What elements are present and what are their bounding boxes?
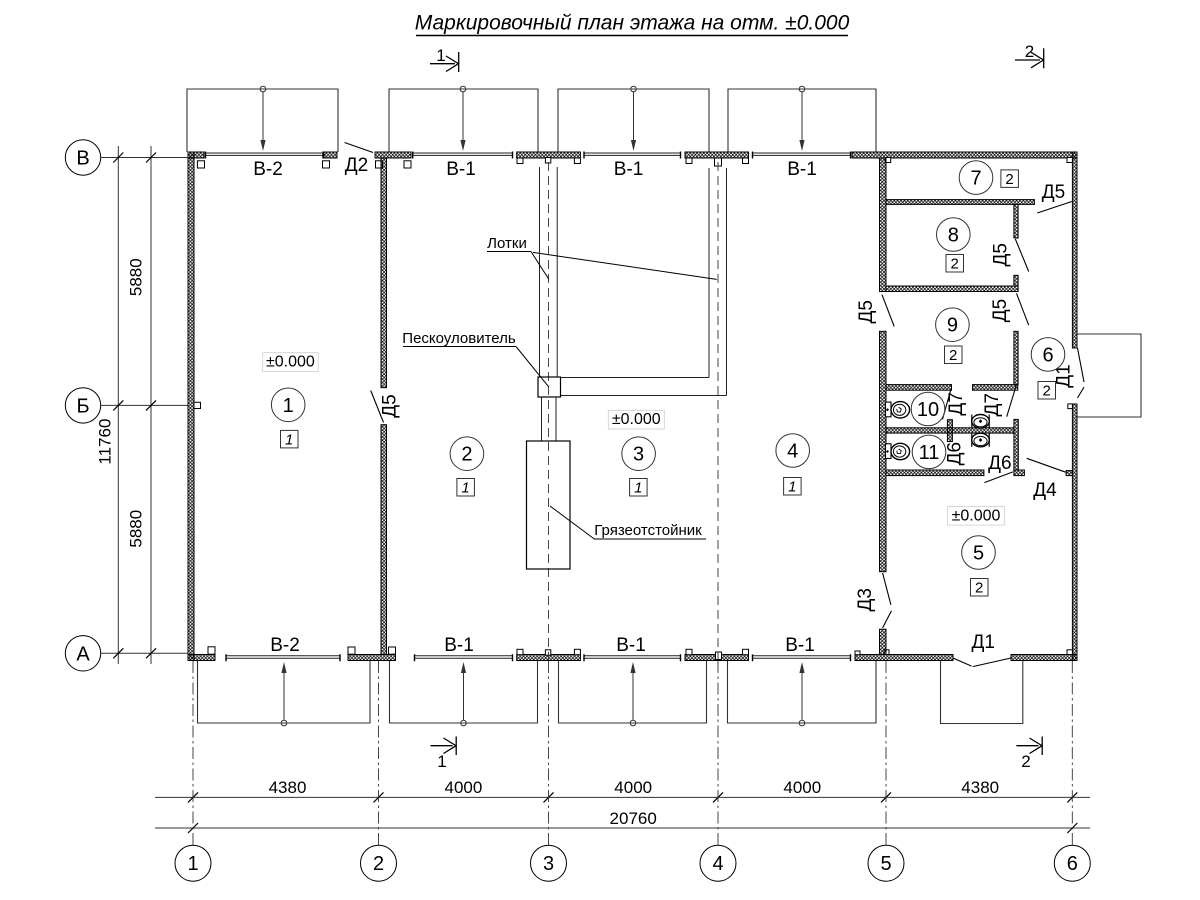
svg-text:2: 2 <box>1005 171 1013 188</box>
svg-text:Д1: Д1 <box>1054 364 1075 387</box>
svg-text:1: 1 <box>285 432 293 449</box>
svg-text:В-1: В-1 <box>787 159 817 180</box>
svg-text:Д6: Д6 <box>945 442 966 465</box>
svg-text:1: 1 <box>187 853 198 875</box>
svg-text:В-2: В-2 <box>270 635 300 656</box>
svg-text:Д5: Д5 <box>856 300 877 323</box>
svg-text:Грязеотстойник: Грязеотстойник <box>594 522 702 539</box>
svg-text:Маркировочный план этажа на от: Маркировочный план этажа на отм. ±0.000 <box>415 12 850 35</box>
svg-text:Д6: Д6 <box>988 453 1011 474</box>
svg-text:±0.000: ±0.000 <box>266 354 315 371</box>
svg-text:В-1: В-1 <box>616 635 646 656</box>
svg-text:4000: 4000 <box>614 778 652 797</box>
svg-text:1: 1 <box>461 480 469 497</box>
svg-text:5880: 5880 <box>127 510 146 548</box>
svg-text:11: 11 <box>919 442 940 464</box>
svg-text:Д5: Д5 <box>991 243 1012 266</box>
svg-text:4000: 4000 <box>444 778 482 797</box>
svg-text:3: 3 <box>633 444 644 466</box>
svg-text:5: 5 <box>880 853 891 875</box>
svg-text:4: 4 <box>787 441 798 463</box>
svg-text:2: 2 <box>1025 42 1034 61</box>
svg-text:5880: 5880 <box>127 258 146 296</box>
svg-text:1: 1 <box>283 395 294 417</box>
svg-text:1: 1 <box>436 46 445 65</box>
svg-text:1: 1 <box>788 479 796 496</box>
svg-text:11760: 11760 <box>96 419 115 465</box>
svg-text:Лотки: Лотки <box>487 235 527 252</box>
svg-text:Д7: Д7 <box>982 393 1003 416</box>
svg-text:1: 1 <box>634 480 642 497</box>
svg-text:4380: 4380 <box>269 778 307 797</box>
svg-text:4380: 4380 <box>961 778 999 797</box>
svg-text:Д4: Д4 <box>1033 480 1057 501</box>
svg-text:Д3: Д3 <box>855 588 876 611</box>
svg-text:Д5: Д5 <box>1042 182 1065 203</box>
svg-text:4: 4 <box>712 853 723 875</box>
svg-text:Пескоуловитель: Пескоуловитель <box>402 330 516 347</box>
svg-text:2: 2 <box>975 580 983 597</box>
svg-text:6: 6 <box>1067 853 1078 875</box>
svg-text:9: 9 <box>947 315 958 337</box>
svg-text:Д5: Д5 <box>990 299 1011 322</box>
svg-text:В-1: В-1 <box>785 635 815 656</box>
svg-text:2: 2 <box>461 444 472 466</box>
svg-text:Д5: Д5 <box>380 394 401 417</box>
svg-text:7: 7 <box>970 168 981 190</box>
svg-text:4000: 4000 <box>783 778 821 797</box>
svg-text:В-2: В-2 <box>253 159 283 180</box>
svg-text:3: 3 <box>543 853 554 875</box>
svg-text:20760: 20760 <box>610 809 657 828</box>
svg-text:А: А <box>76 643 90 665</box>
svg-text:±0.000: ±0.000 <box>612 411 661 428</box>
svg-text:В-1: В-1 <box>614 159 644 180</box>
svg-text:2: 2 <box>373 853 384 875</box>
svg-text:2: 2 <box>1043 383 1051 400</box>
svg-text:2: 2 <box>1021 752 1030 771</box>
svg-text:2: 2 <box>951 256 959 273</box>
svg-text:В-1: В-1 <box>444 635 474 656</box>
svg-text:5: 5 <box>973 543 984 565</box>
svg-text:В: В <box>76 148 89 170</box>
svg-text:±0.000: ±0.000 <box>952 508 1001 525</box>
svg-text:Д7: Д7 <box>946 392 967 415</box>
svg-text:В-1: В-1 <box>446 159 476 180</box>
svg-text:Б: Б <box>76 395 89 417</box>
svg-text:2: 2 <box>949 347 957 364</box>
svg-text:10: 10 <box>917 399 939 421</box>
svg-text:6: 6 <box>1042 344 1053 366</box>
svg-text:Д1: Д1 <box>971 632 994 653</box>
svg-text:8: 8 <box>948 225 959 247</box>
svg-text:Д2: Д2 <box>345 155 368 176</box>
svg-text:1: 1 <box>437 752 446 771</box>
